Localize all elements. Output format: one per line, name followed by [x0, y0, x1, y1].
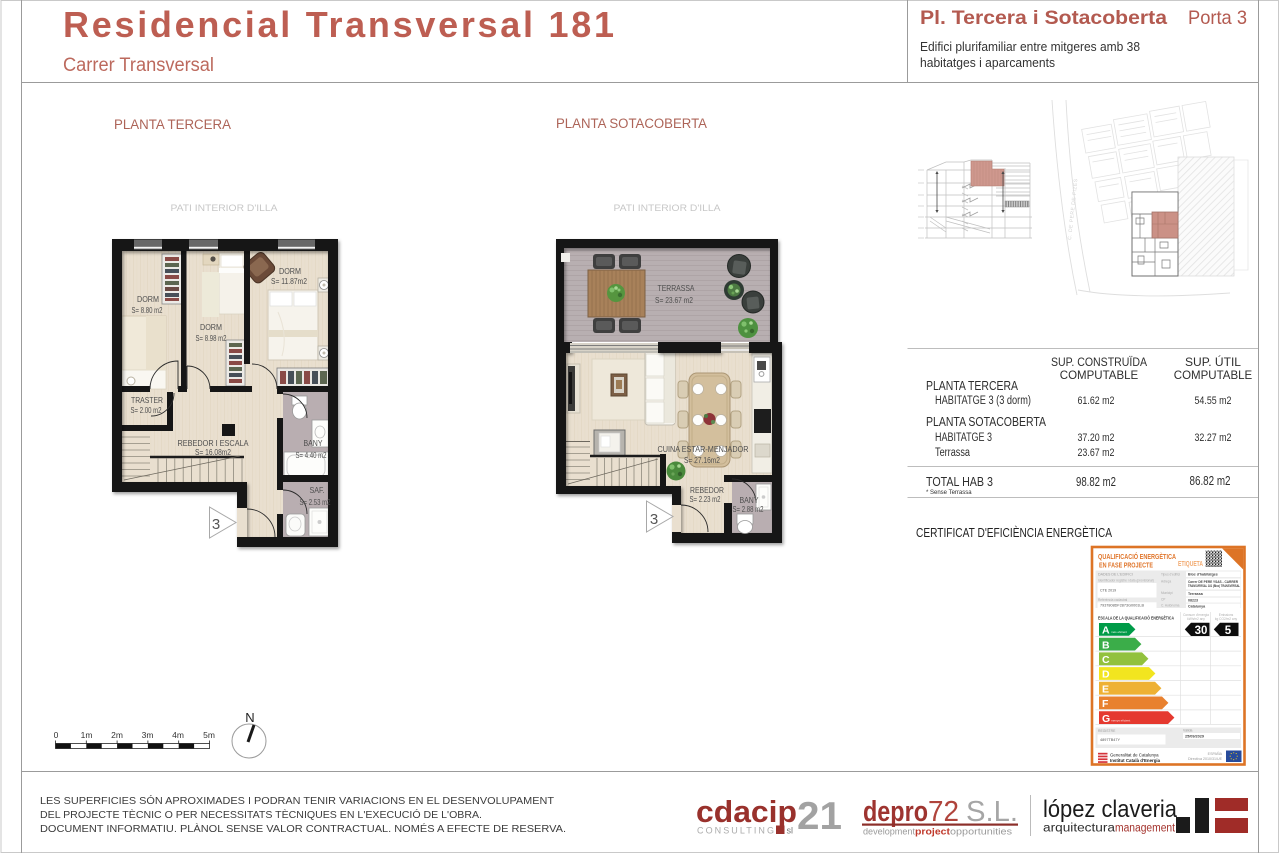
- svg-text:TRASTER: TRASTER: [131, 395, 163, 405]
- svg-text:Bloc d'habitatges: Bloc d'habitatges: [1188, 573, 1218, 577]
- svg-text:SUP. ÚTIL: SUP. ÚTIL: [1185, 356, 1242, 369]
- svg-text:61.62 m2: 61.62 m2: [1078, 395, 1115, 407]
- svg-text:54.55 m2: 54.55 m2: [1195, 395, 1232, 407]
- svg-text:CERTIFICAT D'EFICIÈNCIA ENERGÈ: CERTIFICAT D'EFICIÈNCIA ENERGÈTICA: [916, 525, 1112, 540]
- svg-text:cdacip: cdacip: [696, 794, 797, 829]
- svg-text:REBEDOR I ESCALA: REBEDOR I ESCALA: [178, 438, 249, 448]
- svg-text:Vàlida: Vàlida: [1183, 729, 1193, 733]
- svg-text:COMPUTABLE: COMPUTABLE: [1174, 370, 1253, 382]
- svg-text:COMPUTABLE: COMPUTABLE: [1060, 370, 1139, 382]
- svg-text:3: 3: [212, 516, 220, 533]
- svg-text:PLANTA TERCERA: PLANTA TERCERA: [114, 117, 231, 132]
- svg-text:HABITATGE 3 (3 dorm): HABITATGE 3 (3 dorm): [935, 395, 1031, 407]
- svg-text:habitatges i aparcaments: habitatges i aparcaments: [920, 55, 1055, 70]
- svg-text:Edifici plurifamiliar entre mi: Edifici plurifamiliar entre mitgeres amb…: [920, 39, 1140, 54]
- svg-text:DADES DE L'EDIFICI: DADES DE L'EDIFICI: [1098, 573, 1133, 577]
- svg-text:S= 4.40 m2: S= 4.40 m2: [296, 451, 327, 460]
- svg-text:sl: sl: [787, 826, 794, 836]
- svg-text:DORM: DORM: [279, 266, 301, 276]
- svg-text:Porta 3: Porta 3: [1188, 7, 1247, 29]
- svg-text:S= 8.98 m2: S= 8.98 m2: [196, 334, 227, 343]
- svg-text:TOTAL HAB 3: TOTAL HAB 3: [926, 474, 993, 489]
- svg-text:Carrer Transversal: Carrer Transversal: [63, 55, 214, 76]
- svg-text:72: 72: [928, 796, 959, 828]
- svg-text:S= 2.23 m2: S= 2.23 m2: [690, 495, 721, 504]
- svg-text:N: N: [245, 710, 254, 725]
- svg-text:5m: 5m: [203, 730, 215, 740]
- svg-text:S= 2.53 m2: S= 2.53 m2: [300, 498, 331, 507]
- svg-text:BANY: BANY: [304, 438, 323, 448]
- svg-text:REGISTRE: REGISTRE: [1098, 729, 1116, 733]
- svg-text:D: D: [1102, 669, 1110, 681]
- svg-text:REBEDOR: REBEDOR: [690, 485, 724, 495]
- svg-text:C: C: [1102, 654, 1110, 666]
- svg-text:development: development: [863, 827, 915, 838]
- svg-text:S= 27.16m2: S= 27.16m2: [684, 456, 720, 465]
- svg-text:project: project: [915, 827, 951, 838]
- svg-text:CUINA ESTAR-MENJADOR: CUINA ESTAR-MENJADOR: [658, 444, 749, 454]
- svg-text:2m: 2m: [111, 730, 123, 740]
- svg-text:LES SUPERFICIES SÓN APROXIMADE: LES SUPERFICIES SÓN APROXIMADES I PODRAN…: [40, 794, 555, 807]
- svg-text:més eficient: més eficient: [1111, 630, 1127, 634]
- svg-text:Municipi: Municipi: [1161, 591, 1173, 595]
- svg-text:Terrassa: Terrassa: [1188, 592, 1204, 596]
- svg-text:32.27 m2: 32.27 m2: [1195, 432, 1232, 444]
- svg-text:4897TB47Y: 4897TB47Y: [1100, 738, 1121, 742]
- svg-text:30: 30: [1195, 625, 1208, 637]
- svg-text:Institut Català d'Energia: Institut Català d'Energia: [1110, 758, 1161, 763]
- svg-text:S= 16.08m2: S= 16.08m2: [195, 448, 231, 457]
- svg-text:S= 8.80 m2: S= 8.80 m2: [132, 306, 163, 315]
- svg-text:23.67 m2: 23.67 m2: [1078, 447, 1115, 459]
- svg-text:PLANTA SOTACOBERTA: PLANTA SOTACOBERTA: [926, 415, 1047, 429]
- svg-text:PLANTA SOTACOBERTA: PLANTA SOTACOBERTA: [556, 116, 707, 131]
- svg-text:Terrassa: Terrassa: [935, 447, 970, 459]
- svg-text:management: management: [1115, 823, 1176, 835]
- svg-text:3: 3: [650, 511, 658, 528]
- svg-text:PLANTA TERCERA: PLANTA TERCERA: [926, 379, 1019, 393]
- svg-text:menys eficient: menys eficient: [1111, 718, 1130, 722]
- svg-text:ETIQUETA: ETIQUETA: [1178, 561, 1203, 568]
- svg-text:G: G: [1102, 713, 1110, 725]
- svg-text:arquitectura: arquitectura: [1043, 823, 1116, 835]
- svg-text:opportunities: opportunities: [950, 827, 1012, 838]
- svg-text:Tipus d'edifici: Tipus d'edifici: [1161, 573, 1180, 577]
- svg-text:E: E: [1102, 683, 1109, 695]
- svg-text:HABITATGE 3: HABITATGE 3: [935, 432, 992, 444]
- svg-text:CONSULTING: CONSULTING: [697, 826, 774, 836]
- svg-text:CTE 2019: CTE 2019: [1100, 589, 1116, 593]
- svg-text:SUP. CONSTRUÏDA: SUP. CONSTRUÏDA: [1051, 357, 1147, 369]
- svg-text:lópez claveria: lópez claveria: [1043, 796, 1177, 823]
- svg-text:Generalitat de Catalunya: Generalitat de Catalunya: [1110, 753, 1159, 758]
- svg-text:25/09/2029: 25/09/2029: [1185, 735, 1204, 739]
- svg-text:98.82 m2: 98.82 m2: [1076, 475, 1116, 489]
- svg-text:Adreça: Adreça: [1161, 579, 1171, 583]
- svg-text:Residencial Transversal 181: Residencial Transversal 181: [63, 4, 614, 45]
- svg-text:Identificador registre i data: Identificador registre i data (provision…: [1098, 578, 1154, 582]
- svg-text:ESPAÑA: ESPAÑA: [1208, 751, 1223, 756]
- svg-text:depro: depro: [863, 796, 928, 828]
- svg-text:B: B: [1102, 639, 1110, 651]
- svg-text:EN FASE PROJECTE: EN FASE PROJECTE: [1099, 561, 1153, 570]
- svg-text:DORM: DORM: [200, 322, 222, 332]
- svg-text:1m: 1m: [81, 730, 93, 740]
- svg-text:S.L.: S.L.: [966, 796, 1018, 828]
- svg-text:3m: 3m: [142, 730, 154, 740]
- svg-text:F: F: [1102, 698, 1109, 710]
- svg-text:0: 0: [54, 730, 59, 740]
- svg-text:PATI INTERIOR D'ILLA: PATI INTERIOR D'ILLA: [614, 203, 722, 214]
- svg-text:S= 2.88 m2: S= 2.88 m2: [733, 505, 764, 514]
- svg-text:S= 23.67 m2: S= 23.67 m2: [655, 296, 693, 305]
- svg-text:DOCUMENT INFORMATIU. PLÀNOL SE: DOCUMENT INFORMATIU. PLÀNOL SENSE VALOR …: [40, 822, 566, 835]
- svg-text:4m: 4m: [172, 730, 184, 740]
- svg-text:kWh/m2 any: kWh/m2 any: [1187, 617, 1205, 621]
- svg-text:* Sense Terrassa: * Sense Terrassa: [926, 490, 972, 496]
- svg-text:CP: CP: [1161, 598, 1165, 602]
- svg-text:A: A: [1102, 625, 1110, 637]
- svg-text:TRANSVERSAL 181 (Bloc) TRANSVE: TRANSVERSAL 181 (Bloc) TRANSVERSAL: [1188, 584, 1241, 588]
- svg-text:ESCALA DE LA QUALIFICACIÓ ENER: ESCALA DE LA QUALIFICACIÓ ENERGÈTICA: [1098, 616, 1174, 621]
- svg-text:PATI INTERIOR D'ILLA: PATI INTERIOR D'ILLA: [171, 203, 279, 214]
- svg-text:C. Autònoma: C. Autònoma: [1161, 604, 1180, 608]
- svg-text:kg CO2/m2 any: kg CO2/m2 any: [1215, 617, 1238, 621]
- svg-text:08223: 08223: [1188, 598, 1198, 602]
- svg-text:S= 2.00 m2: S= 2.00 m2: [131, 406, 162, 415]
- svg-text:TERRASSA: TERRASSA: [658, 283, 695, 293]
- svg-text:Catalunya: Catalunya: [1188, 604, 1206, 608]
- svg-text:DEL PROJECTE TÈCNIC O PER NECE: DEL PROJECTE TÈCNIC O PER NECESSITATS TÈ…: [40, 808, 482, 821]
- svg-text:BANY: BANY: [740, 495, 759, 505]
- svg-text:Referència cadastral: Referència cadastral: [1098, 598, 1128, 602]
- svg-text:Pl. Tercera i Sotacoberta: Pl. Tercera i Sotacoberta: [920, 7, 1167, 29]
- svg-text:S= 11.87m2: S= 11.87m2: [271, 277, 307, 286]
- svg-text:DORM: DORM: [137, 294, 159, 304]
- svg-text:Directiva 2010/31/UE: Directiva 2010/31/UE: [1188, 757, 1223, 761]
- svg-text:7937808DF2873G0001LB: 7937808DF2873G0001LB: [1100, 604, 1145, 608]
- svg-text:37.20 m2: 37.20 m2: [1078, 432, 1115, 444]
- svg-text:5: 5: [1225, 625, 1232, 637]
- svg-text:21: 21: [797, 795, 842, 838]
- svg-text:86.82 m2: 86.82 m2: [1190, 473, 1231, 488]
- svg-text:SAF.: SAF.: [310, 485, 325, 495]
